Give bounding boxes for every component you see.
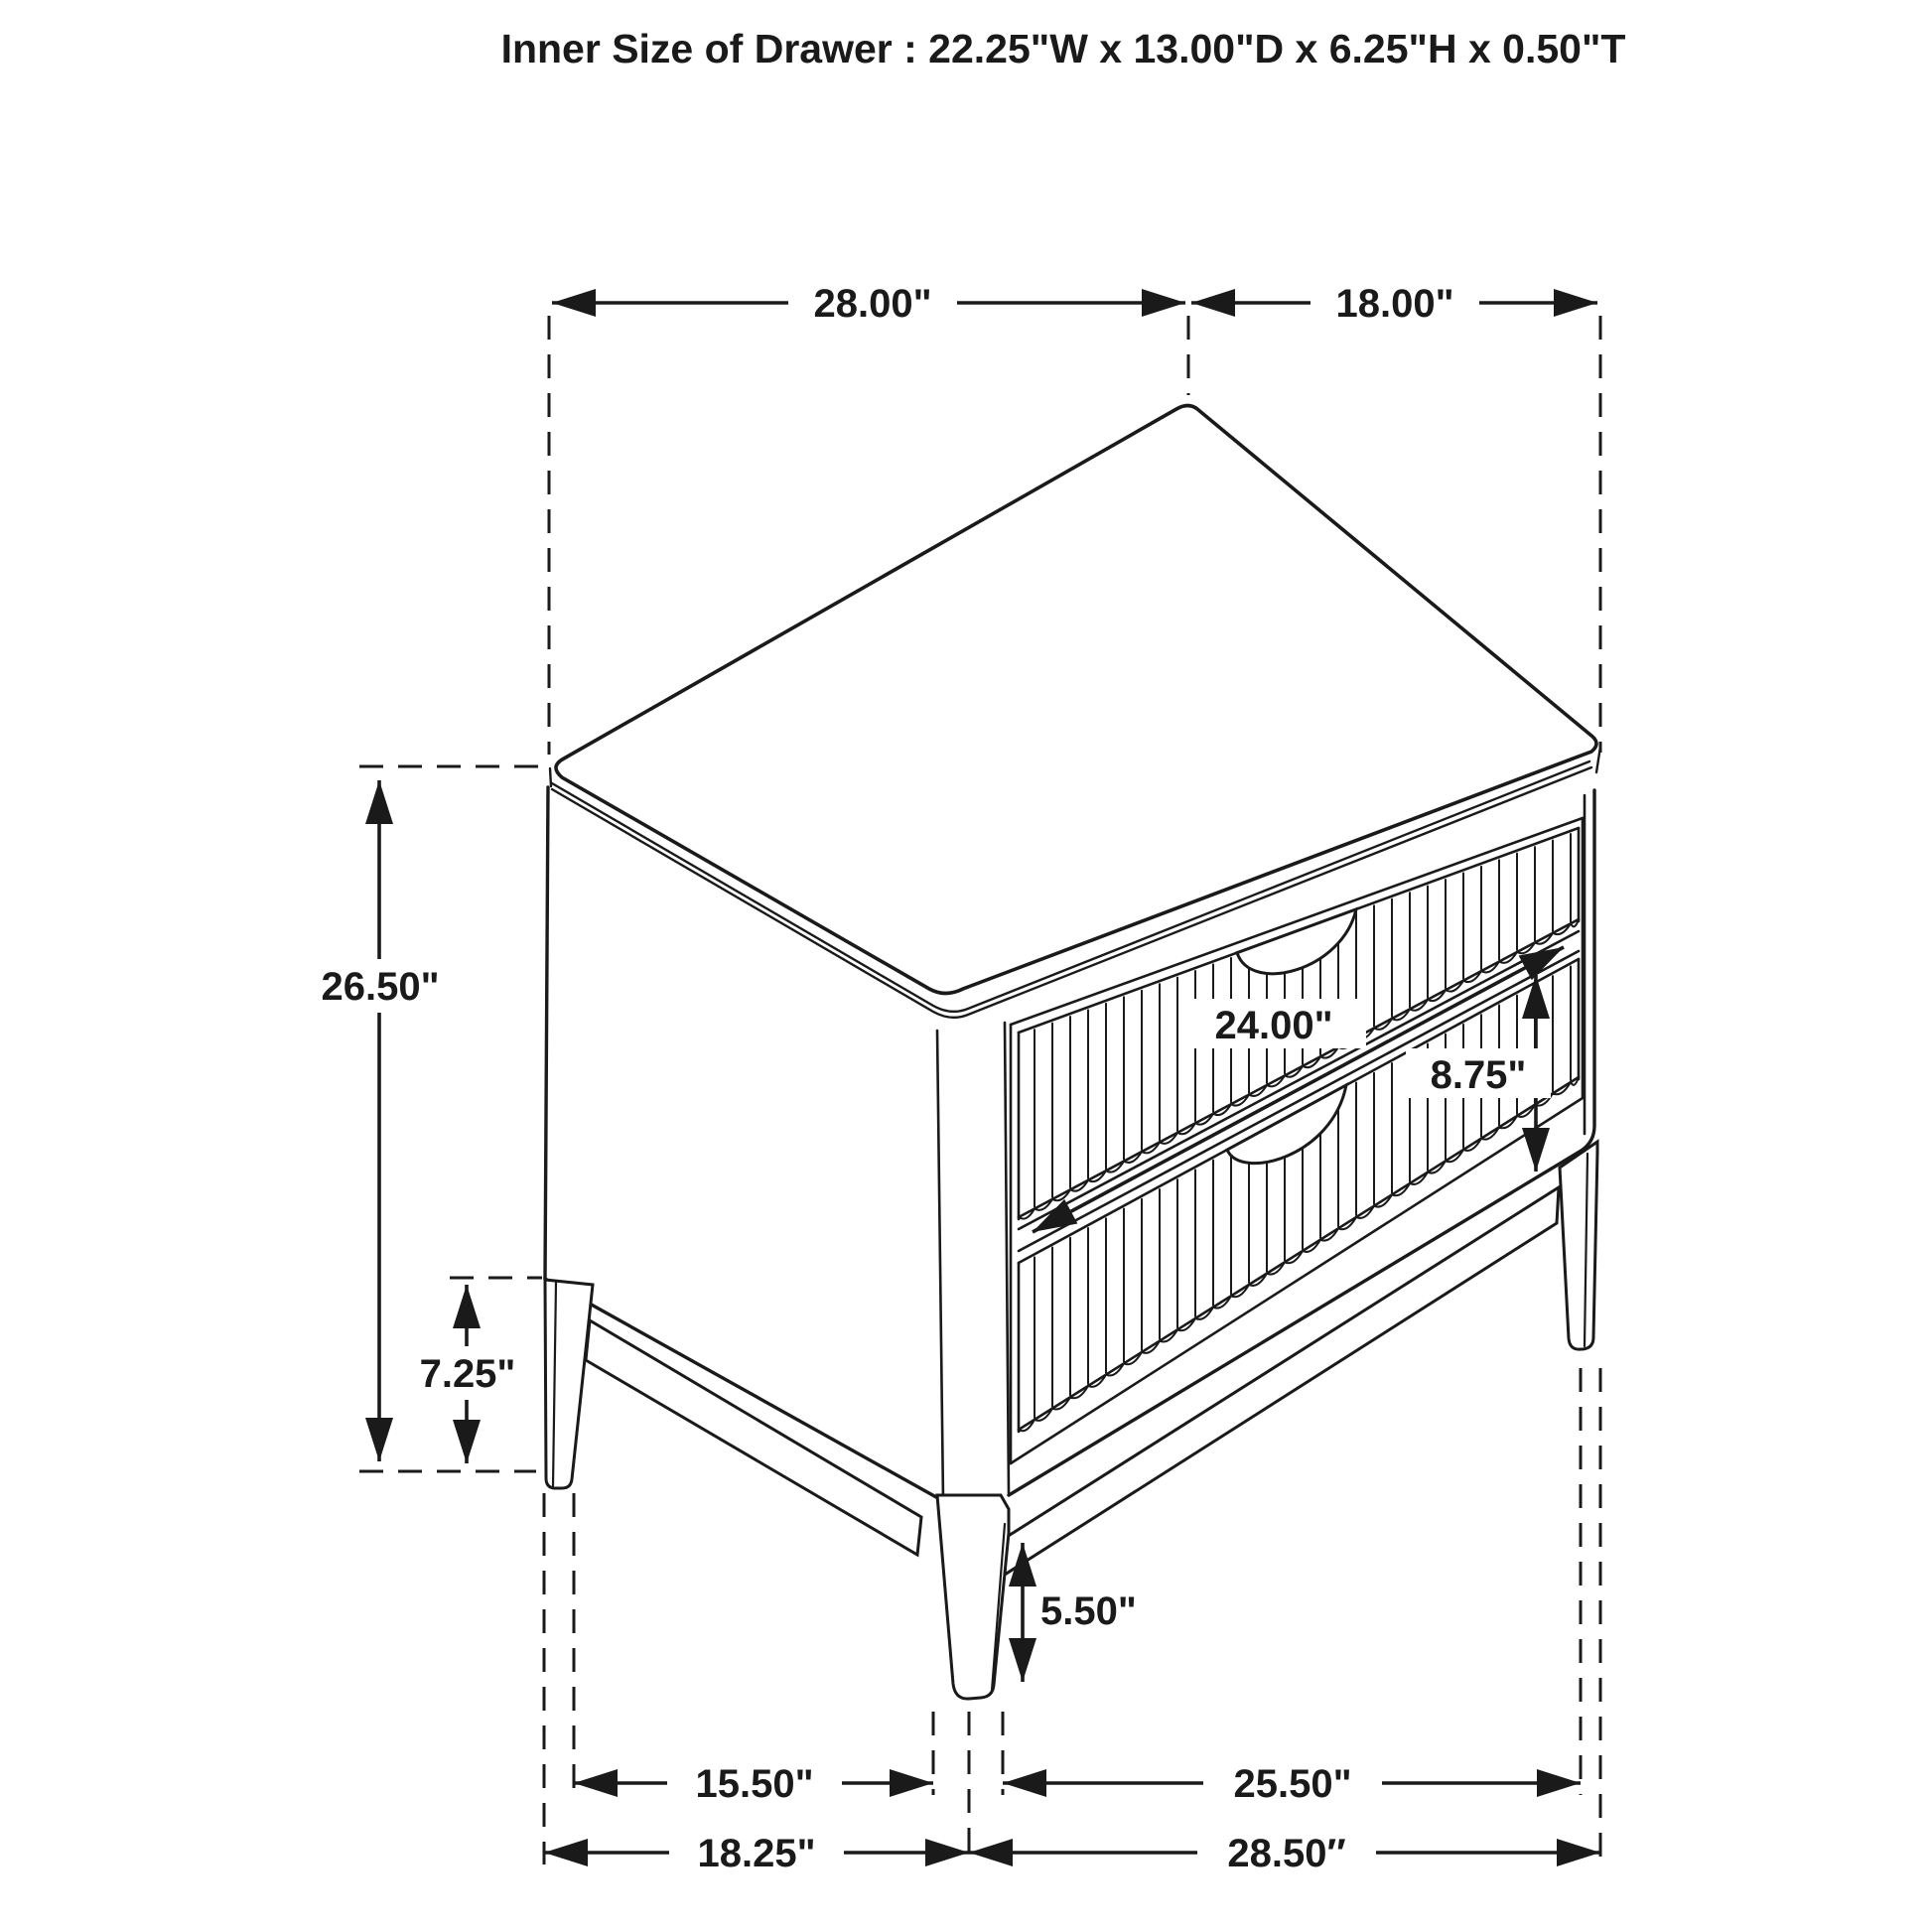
dimension-arrowhead [1554, 289, 1597, 317]
dim-front-leg-height: 5.50" [1040, 1589, 1137, 1633]
body-left-edge [545, 787, 548, 1279]
drawer-divider-line [1019, 951, 1579, 1251]
dim-top-width: 28.00" [813, 282, 931, 326]
tabletop-corner-tick-left [550, 768, 551, 786]
dimension-arrowhead [1557, 1839, 1600, 1866]
dim-side-feet-outer: 18.25" [697, 1832, 815, 1875]
dimension-arrowhead [1009, 1638, 1036, 1682]
dimension-arrowhead [890, 1769, 933, 1797]
dimension-arrowhead [365, 1418, 393, 1461]
dimension-arrowhead [552, 289, 596, 317]
dimension-arrowhead [1191, 289, 1235, 317]
dimension-arrowhead [453, 1285, 481, 1328]
dimension-arrowhead [1003, 1769, 1046, 1797]
back-left-leg [545, 1280, 593, 1488]
dimension-arrowhead [1537, 1769, 1581, 1797]
drawing-title: Inner Size of Drawer : 22.25"W x 13.00"D… [501, 26, 1626, 71]
dim-front-feet-outer: 28.50″ [1227, 1832, 1345, 1875]
nightstand-dimension-drawing: Inner Size of Drawer : 22.25"W x 13.00"D… [0, 0, 1932, 1932]
dim-side-feet-inner: 15.50" [695, 1762, 813, 1806]
dim-back-leg-height: 7.25" [420, 1352, 516, 1396]
front-left-leg [937, 1495, 1009, 1699]
tabletop-surface [556, 406, 1596, 994]
body-left-bottom-edge [545, 1279, 945, 1502]
side-apron [586, 1320, 921, 1555]
dimension-diagram-page: Inner Size of Drawer : 22.25"W x 13.00"D… [0, 0, 1932, 1932]
dimension-arrowhead [969, 1839, 1013, 1866]
dimension-arrowhead [574, 1769, 618, 1797]
dimension-arrowhead [453, 1420, 481, 1463]
tabletop-corner-tick-right [1596, 747, 1600, 772]
dim-top-depth: 18.00" [1335, 282, 1453, 326]
dimension-arrowhead [544, 1839, 588, 1866]
front-right-leg [1560, 1142, 1597, 1349]
dim-front-feet-inner: 25.50" [1233, 1762, 1351, 1806]
dim-overall-height: 26.50" [321, 965, 439, 1009]
dimension-arrowhead [1522, 1128, 1550, 1172]
dimension-arrowhead [1142, 289, 1185, 317]
dim-drawer-height: 8.75" [1431, 1053, 1527, 1097]
dimension-arrowhead [365, 780, 393, 824]
body-front-corner-edge-right [1005, 1023, 1009, 1493]
dimension-arrowhead [925, 1839, 969, 1866]
body-front-corner-edge-left [937, 1031, 943, 1500]
dimension-arrowhead [1522, 975, 1550, 1019]
dim-drawer-width: 24.00" [1214, 1004, 1332, 1047]
